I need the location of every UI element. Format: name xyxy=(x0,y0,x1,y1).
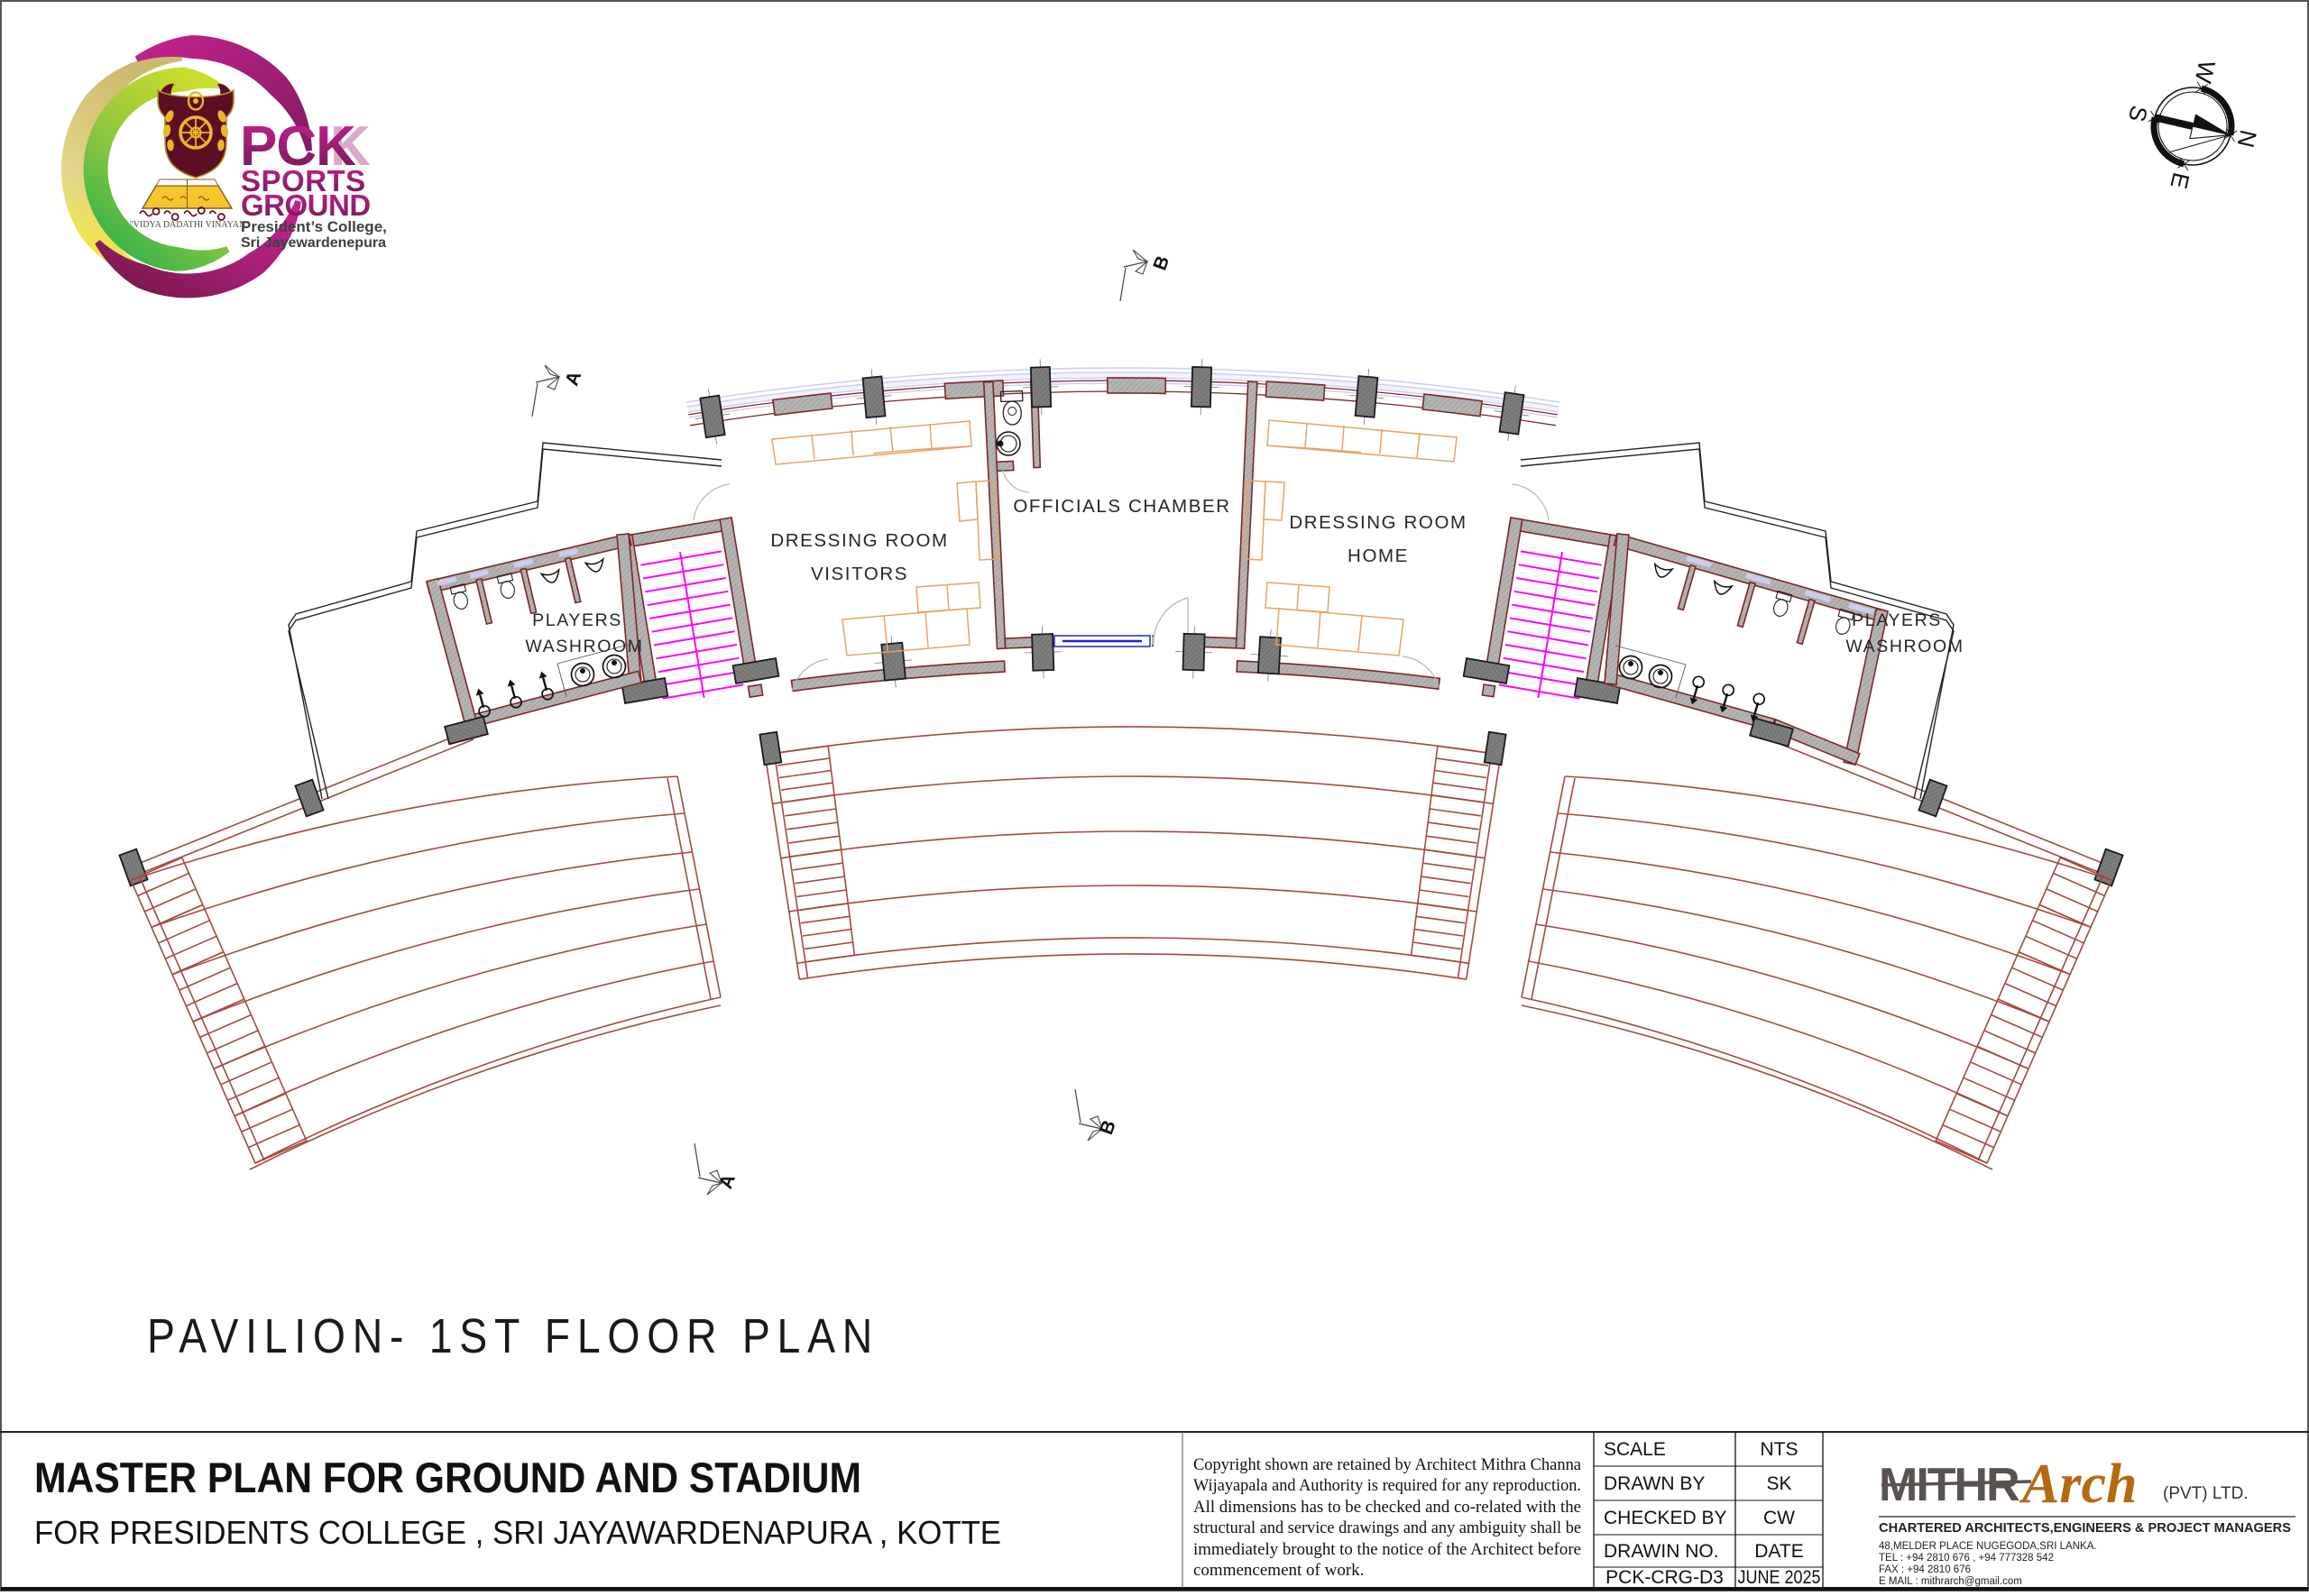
svg-text:commencement of work.: commencement of work. xyxy=(1193,1561,1364,1580)
svg-text:Copyright shown are retained b: Copyright shown are retained by Architec… xyxy=(1193,1455,1582,1474)
svg-text:PLAYERS: PLAYERS xyxy=(1852,610,1942,630)
svg-text:FAX : +94 2810 676: FAX : +94 2810 676 xyxy=(1879,1564,1971,1575)
svg-text:OFFICIALS CHAMBER: OFFICIALS CHAMBER xyxy=(1013,496,1230,517)
svg-text:MASTER PLAN FOR GROUND AND STA: MASTER PLAN FOR GROUND AND STADIUM xyxy=(34,1454,861,1501)
svg-text:PAVILION- 1ST FLOOR PLAN: PAVILION- 1ST FLOOR PLAN xyxy=(147,1309,879,1363)
svg-text:SK: SK xyxy=(1766,1473,1791,1494)
svg-text:SCALE: SCALE xyxy=(1604,1439,1666,1460)
svg-text:WASHROOM: WASHROOM xyxy=(1845,637,1964,656)
svg-text:DRAWN BY: DRAWN BY xyxy=(1604,1473,1705,1494)
svg-text:48,MELDER PLACE NUGEGODA,SRI L: 48,MELDER PLACE NUGEGODA,SRI LANKA. xyxy=(1879,1541,2097,1552)
svg-text:Sri Jayewardenepura: Sri Jayewardenepura xyxy=(241,235,386,251)
svg-text:FOR PRESIDENTS COLLEGE , SRI J: FOR PRESIDENTS COLLEGE , SRI JAYAWARDENA… xyxy=(34,1514,1001,1551)
svg-text:All dimensions has to be check: All dimensions has to be checked and co-… xyxy=(1193,1498,1581,1517)
svg-text:PCK-CRG-D3: PCK-CRG-D3 xyxy=(1605,1567,1724,1588)
svg-text:DATE: DATE xyxy=(1754,1541,1803,1562)
svg-text:PLAYERS: PLAYERS xyxy=(532,610,622,630)
svg-text:GROUND: GROUND xyxy=(241,188,371,222)
svg-text:E MAIL : mithrarch@gmail.com: E MAIL : mithrarch@gmail.com xyxy=(1879,1576,2022,1587)
svg-text:TEL : +94 2810 676 , +94 77732: TEL : +94 2810 676 , +94 777328 542 xyxy=(1879,1553,2054,1564)
svg-text:DRAWIN NO.: DRAWIN NO. xyxy=(1604,1541,1719,1562)
svg-text:immediately brought to the n: immediately brought to the notice of the… xyxy=(1193,1540,1581,1559)
svg-text:(PVT) LTD.: (PVT) LTD. xyxy=(2163,1484,2249,1503)
svg-text:VISITORS: VISITORS xyxy=(811,564,908,584)
svg-text:CHARTERED ARCHITECTS,ENGINEERS: CHARTERED ARCHITECTS,ENGINEERS & PROJECT… xyxy=(1879,1520,2291,1536)
svg-text:NTS: NTS xyxy=(1761,1439,1798,1460)
svg-text:CHECKED BY: CHECKED BY xyxy=(1604,1508,1727,1528)
svg-text:Arch: Arch xyxy=(2019,1454,2137,1515)
svg-text:structural and service drawing: structural and service drawings and any … xyxy=(1193,1518,1581,1537)
svg-text:DRESSING ROOM: DRESSING ROOM xyxy=(1289,512,1467,533)
svg-text:WASHROOM: WASHROOM xyxy=(525,637,643,656)
svg-text:Wijayapala and Authority is r: Wijayapala and Authority is required for… xyxy=(1193,1476,1581,1495)
svg-text:HOME: HOME xyxy=(1348,546,1409,566)
svg-text:"VIDYA DADATHI VINAYAN": "VIDYA DADATHI VINAYAN" xyxy=(130,220,250,230)
svg-text:President’s College,: President’s College, xyxy=(241,218,387,235)
svg-text:JUNE 2025: JUNE 2025 xyxy=(1738,1567,1821,1588)
svg-text:DRESSING ROOM: DRESSING ROOM xyxy=(770,530,948,551)
svg-text:CW: CW xyxy=(1763,1508,1795,1528)
